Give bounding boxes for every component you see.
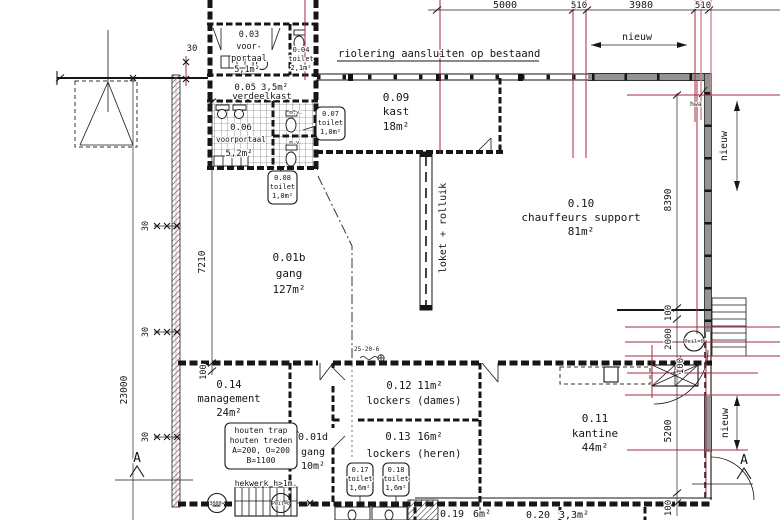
room-0-11-area: 44m² bbox=[582, 441, 609, 454]
note-line2: houten treden bbox=[230, 436, 293, 445]
note-line3: A=200, O=200 bbox=[232, 446, 290, 455]
room-label-0-05: 0.05 3,5m² verdeelkast bbox=[232, 83, 292, 102]
peil-left-text: Peil=0 bbox=[272, 501, 290, 507]
room-0-10-area: 81m² bbox=[568, 225, 595, 238]
nieuw-dimension-right-lower: nieuw bbox=[720, 396, 740, 450]
room-0-18-area: 1,6m² bbox=[385, 484, 406, 492]
dim-23000: 23000 bbox=[119, 375, 130, 404]
dim-510-b: 510 bbox=[695, 1, 711, 11]
room-0-12-area: 11m² bbox=[417, 380, 442, 392]
room-0-18-name: toilet bbox=[383, 475, 408, 483]
room-0-04-area: 2,1m² bbox=[290, 64, 311, 72]
mv-label-2: m.v. bbox=[289, 140, 302, 146]
room-0-14-number: 0.14 bbox=[216, 379, 241, 391]
marker-25-20-6: 25-20-6 bbox=[354, 346, 384, 361]
room-0-01b-name: gang bbox=[276, 267, 303, 280]
room-0-08-name: toilet bbox=[270, 183, 295, 191]
dim-nieuw-right-upper: nieuw bbox=[719, 130, 730, 161]
room-0-01b-area: 127m² bbox=[272, 283, 305, 296]
floor-plan-svg: 5000 510 3980 510 nieuw nieuw nieuw 8390… bbox=[0, 0, 780, 520]
dim-30-b: 30 bbox=[141, 327, 151, 337]
nieuw-dimension-top: nieuw bbox=[591, 32, 687, 48]
label-box-0-08: 0.08 toilet 1,0m² bbox=[268, 166, 297, 204]
room-0-10-name: chauffeurs support bbox=[521, 211, 640, 224]
room-0-04-number: 0.04 bbox=[293, 46, 310, 54]
note-line4: B=1100 bbox=[247, 456, 276, 465]
room-0-19-area: 6m² bbox=[473, 509, 491, 520]
section-marker-right: A bbox=[692, 453, 753, 484]
dim-nieuw-top: nieuw bbox=[622, 32, 653, 43]
loket-rolluik-wall bbox=[420, 152, 432, 310]
dim-30-marks: 30 30 30 30 bbox=[141, 44, 197, 442]
room-0-08-number: 0.08 bbox=[274, 174, 291, 182]
room-label-0-10: 0.10 chauffeurs support 81m² bbox=[521, 197, 640, 238]
room-0-13-area: 16m² bbox=[417, 431, 442, 443]
dim-8390: 8390 bbox=[663, 188, 674, 211]
level-3000-text: 3000+ bbox=[209, 501, 224, 507]
room-0-07-area: 1,0m² bbox=[320, 128, 341, 136]
floor-plan-drawing: 5000 510 3980 510 nieuw nieuw nieuw 8390… bbox=[0, 0, 780, 520]
room-0-09-name: kast bbox=[383, 105, 410, 118]
room-0-04-name: toilet bbox=[288, 55, 313, 63]
room-label-0-20: 0.20 3,3m² bbox=[526, 510, 589, 520]
mv-label-1: m.v. bbox=[289, 110, 302, 116]
room-0-01d-name: gang bbox=[301, 447, 325, 458]
room-0-06-area: 5,2m² bbox=[225, 149, 252, 159]
room-label-0-11: 0.11 kantine 44m² bbox=[572, 412, 618, 454]
hekwerk-label: hekwerk h>1m. bbox=[235, 479, 298, 488]
room-0-13-name: lockers (heren) bbox=[367, 448, 462, 460]
room-label-0-12: 0.12 11m² lockers (dames) bbox=[367, 380, 462, 407]
room-0-19-number: 0.19 bbox=[440, 509, 464, 520]
room-0-20-area: 3,3m² bbox=[559, 510, 589, 520]
dim-5000: 5000 bbox=[493, 0, 517, 11]
dim-30-top: 30 bbox=[187, 44, 198, 54]
room-label-0-13: 0.13 16m² lockers (heren) bbox=[367, 431, 462, 460]
room-0-05-name: verdeelkast bbox=[232, 92, 292, 102]
room-0-03-name1: voor- bbox=[236, 42, 262, 52]
label-box-0-17: 0.17 toilet 1,6m² bbox=[347, 463, 373, 507]
room-0-14-name: management bbox=[197, 393, 260, 405]
room-label-0-01b: 0.01b gang 127m² bbox=[272, 251, 305, 296]
dim-nieuw-right-lower: nieuw bbox=[720, 407, 731, 438]
marker-text: 25-20-6 bbox=[354, 346, 380, 353]
room-0-12-number: 0.12 bbox=[386, 380, 411, 392]
room-0-07-name: toilet bbox=[318, 119, 343, 127]
dim-30-a: 30 bbox=[141, 221, 151, 231]
room-0-07-number: 0.07 bbox=[322, 110, 339, 118]
dim-5200: 5200 bbox=[663, 419, 674, 442]
room-0-01d-area: 10m² bbox=[301, 461, 325, 472]
room-0-03-area: 5,1m² bbox=[234, 65, 260, 75]
room-0-08-area: 1,0m² bbox=[272, 192, 293, 200]
room-0-13-number: 0.13 bbox=[385, 431, 410, 443]
dim-100-b: 100 bbox=[676, 358, 686, 374]
room-0-06-number: 0.06 bbox=[230, 123, 252, 133]
dim-2000: 2000 bbox=[664, 328, 674, 350]
room-0-09-number: 0.09 bbox=[383, 91, 410, 104]
room-0-20-number: 0.20 bbox=[526, 510, 550, 520]
room-0-10-number: 0.10 bbox=[568, 197, 595, 210]
note-box-houten-trap: houten trap houten treden A=200, O=200 B… bbox=[225, 423, 297, 469]
top-dimension-line: 5000 510 3980 510 bbox=[428, 0, 780, 14]
room-0-11-name: kantine bbox=[572, 427, 618, 440]
level-circle-3000: 3000+ bbox=[208, 494, 227, 513]
section-marker-left: A bbox=[115, 451, 193, 480]
dim-3980: 3980 bbox=[629, 0, 653, 11]
room-0-17-name: toilet bbox=[347, 475, 372, 483]
dim-100-left: 100 bbox=[199, 364, 209, 379]
room-0-01d-number: 0.01d bbox=[298, 432, 328, 443]
zone-boundary-line bbox=[318, 176, 352, 363]
room-0-09-area: 18m² bbox=[383, 120, 410, 133]
room-0-17-area: 1,6m² bbox=[349, 484, 370, 492]
room-0-03-name2: portaal bbox=[231, 54, 267, 64]
riolering-note: riolering aansluiten op bestaand bbox=[337, 48, 540, 61]
loket-rolluik-label: loket + rolluik bbox=[438, 183, 449, 273]
dim-510-a: 510 bbox=[571, 1, 587, 11]
room-0-12-name: lockers (dames) bbox=[367, 395, 462, 407]
nieuw-dimension-right-upper: nieuw bbox=[719, 101, 740, 191]
room-0-18-number: 0.18 bbox=[388, 466, 405, 474]
riolering-text: riolering aansluiten op bestaand bbox=[338, 48, 540, 60]
peil-circle-left: Peil=0 bbox=[272, 494, 291, 513]
room-0-01b-number: 0.01b bbox=[272, 251, 305, 264]
label-box-0-18: 0.18 toilet 1,6m² bbox=[383, 463, 409, 507]
room-label-0-04: 0.04 toilet 2,1m² bbox=[288, 46, 313, 72]
hwa-text: hwa bbox=[690, 100, 702, 108]
room-label-0-14: 0.14 management 24m² bbox=[197, 379, 260, 419]
section-a-left: A bbox=[133, 451, 141, 466]
room-0-17-number: 0.17 bbox=[352, 466, 369, 474]
room-0-14-area: 24m² bbox=[216, 407, 241, 419]
section-a-right: A bbox=[740, 453, 748, 468]
room-label-0-01d: 0.01d gang 10m² bbox=[298, 432, 328, 472]
room-label-0-19: 0.19 6m² bbox=[440, 509, 491, 520]
peil-right-text: Peil=0 bbox=[684, 339, 704, 345]
note-line1: houten trap bbox=[235, 426, 288, 435]
room-0-11-number: 0.11 bbox=[582, 412, 609, 425]
room-label-0-09: 0.09 kast 18m² bbox=[383, 91, 410, 133]
dim-100-a: 100 bbox=[664, 305, 674, 321]
peil-circle-right: Peil=0 bbox=[684, 331, 704, 351]
room-0-06-name: voorportaal bbox=[216, 135, 266, 144]
right-dimension-line: 8390 100 2000 100 5200 100 bbox=[663, 92, 686, 517]
dim-7210: 7210 bbox=[197, 250, 208, 273]
dim-30-c: 30 bbox=[141, 432, 151, 442]
entrance-canopy bbox=[56, 30, 208, 147]
room-0-03-number: 0.03 bbox=[239, 30, 259, 40]
dim-100-c: 100 bbox=[664, 500, 674, 516]
